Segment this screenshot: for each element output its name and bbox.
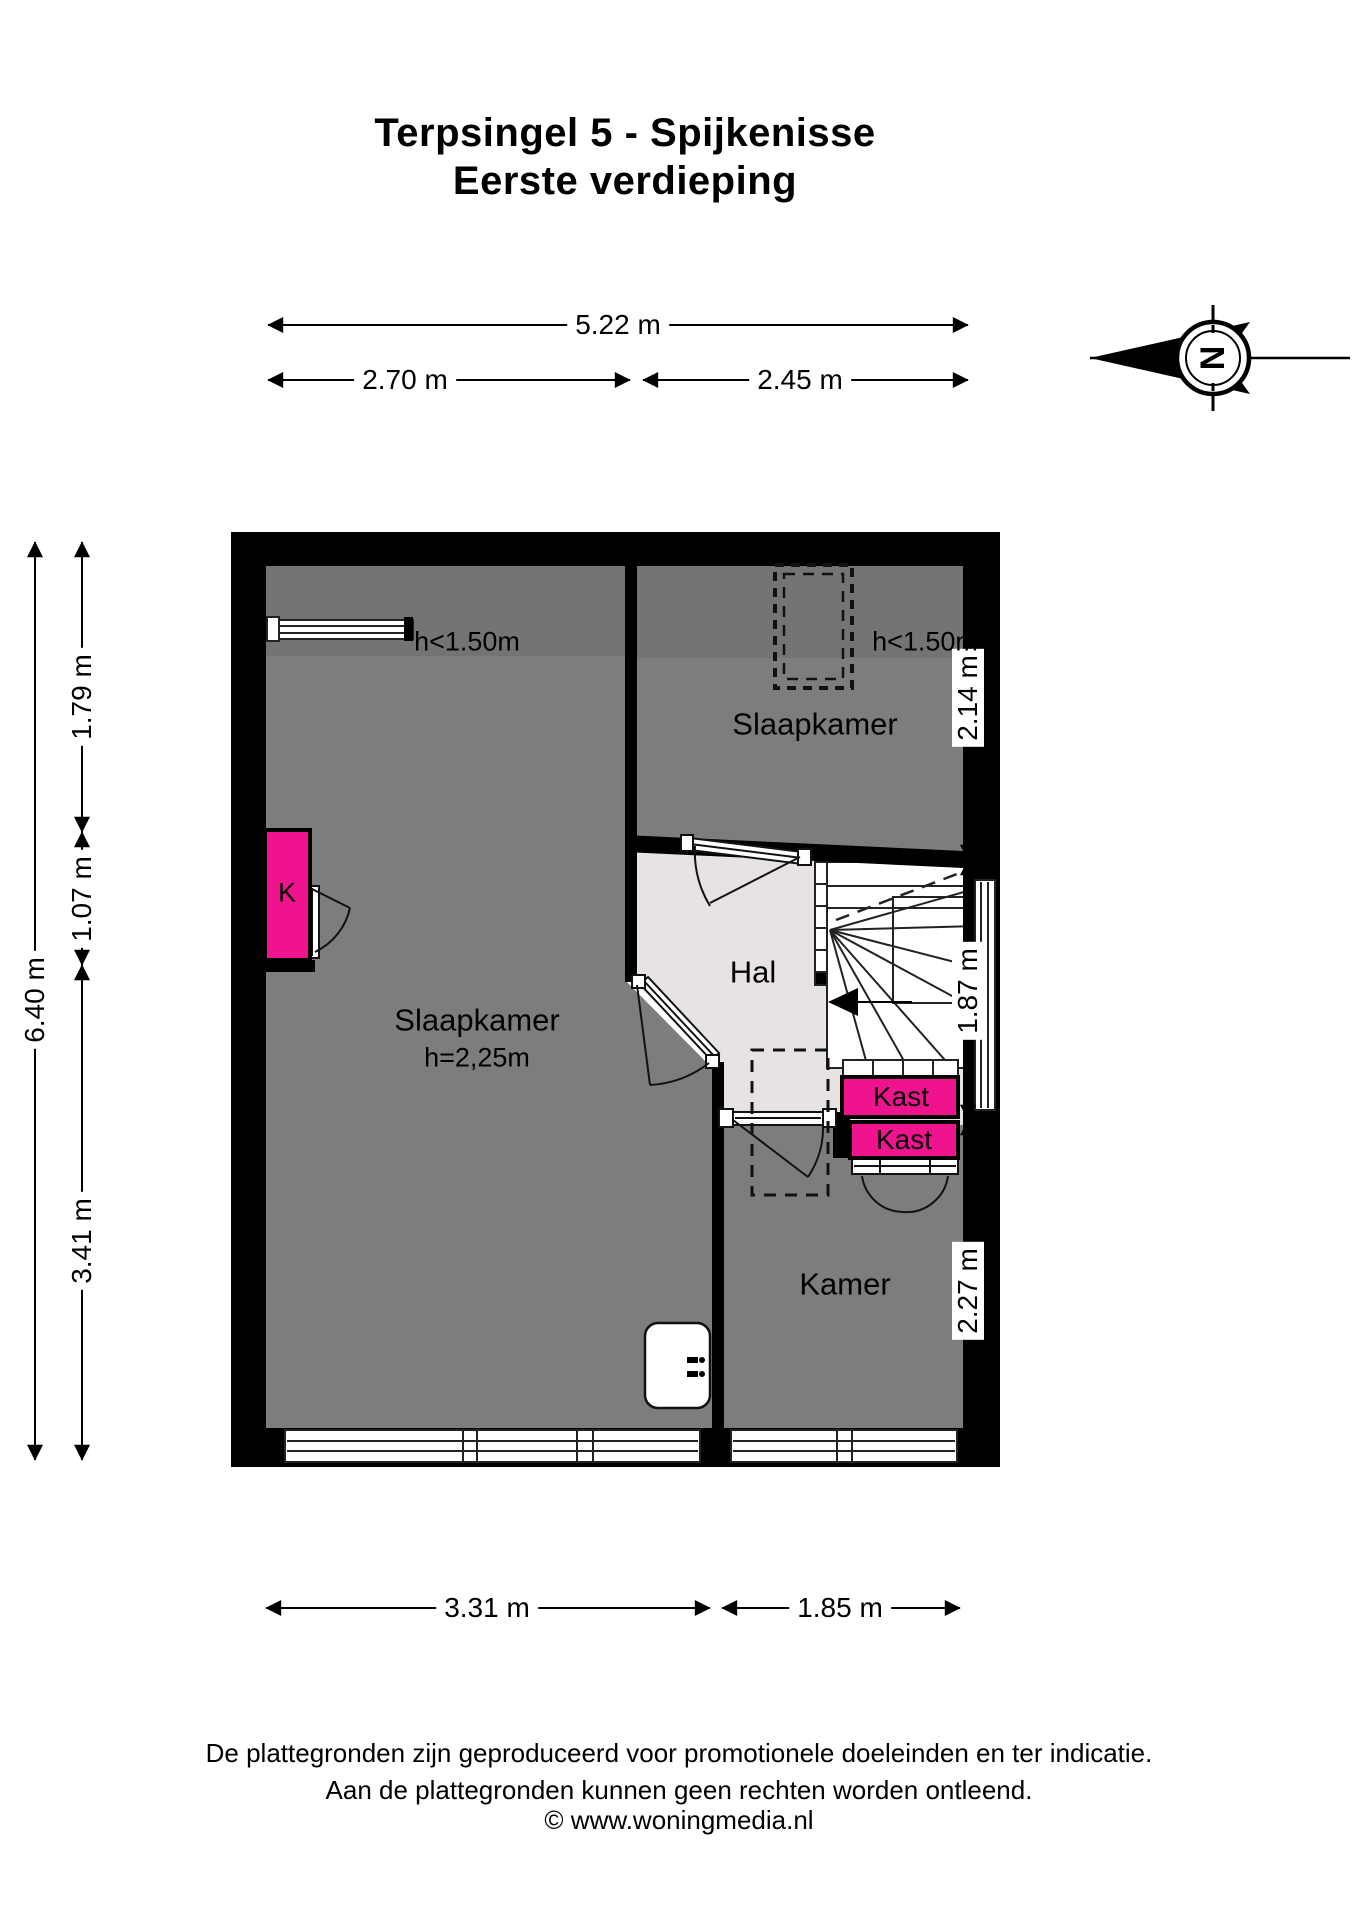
- room-label-bedroom-right: Slaapkamer: [732, 709, 897, 740]
- stair-railing: [815, 862, 827, 985]
- page-title: Terpsingel 5 - Spijkenisse: [374, 113, 875, 153]
- window-bottom-left: [285, 1430, 700, 1462]
- footer-copyright: © www.woningmedia.nl: [544, 1807, 813, 1833]
- dim-bottom-right: 1.85 m: [789, 1592, 891, 1624]
- dim-left-total: 6.40 m: [19, 951, 51, 1049]
- dim-top-right: 2.45 m: [749, 364, 851, 396]
- floorplan-page: Terpsingel 5 - Spijkenisse Eerste verdie…: [0, 0, 1358, 1920]
- footer-disclaimer-line2: Aan de plattegronden kunnen geen rechten…: [326, 1777, 1033, 1803]
- window-dormer-left: [267, 617, 413, 641]
- closet-label-k: K: [278, 880, 296, 907]
- room-label-hall: Hal: [730, 957, 777, 988]
- dim-right-segment-1: 2.14 m: [952, 649, 984, 747]
- dim-top-total: 5.22 m: [567, 309, 669, 341]
- compass-north-label: N: [1196, 346, 1230, 371]
- washbasin-fixture: [645, 1323, 710, 1408]
- room-height-note: h=2,25m: [424, 1045, 530, 1072]
- low-headroom-label-left: h<1.50m: [414, 629, 520, 656]
- room-label-kamer: Kamer: [799, 1269, 890, 1300]
- dim-top-left: 2.70 m: [354, 364, 456, 396]
- dim-bottom-left: 3.31 m: [436, 1592, 538, 1624]
- footer-disclaimer-line1: De plattegronden zijn geproduceerd voor …: [206, 1740, 1153, 1766]
- closet-label-top: Kast: [873, 1083, 929, 1111]
- dim-left-segment-2: 1.07 m: [66, 850, 98, 948]
- dim-right-segment-2: 1.87 m: [952, 942, 984, 1040]
- dim-right-segment-3: 2.27 m: [952, 1242, 984, 1340]
- page-subtitle: Eerste verdieping: [453, 161, 797, 201]
- low-headroom-label-right: h<1.50m: [872, 629, 978, 656]
- stair-landing: [843, 1060, 958, 1077]
- closet-label-bottom: Kast: [876, 1126, 932, 1154]
- dim-left-segment-1: 1.79 m: [66, 648, 98, 746]
- room-label-bedroom-left: Slaapkamer: [394, 1005, 559, 1036]
- dim-left-segment-3: 3.41 m: [66, 1192, 98, 1290]
- window-bottom-right: [731, 1430, 957, 1462]
- floor-plan-drawing: [0, 0, 1358, 1920]
